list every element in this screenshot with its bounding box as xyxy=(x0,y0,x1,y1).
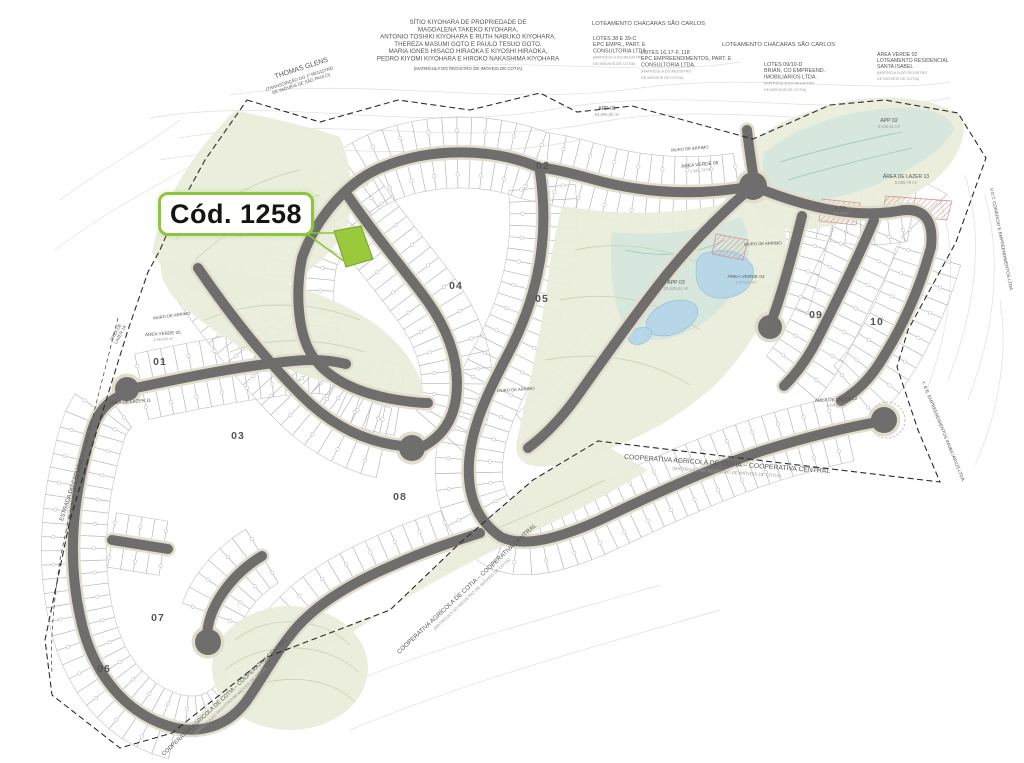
lot-number-marker xyxy=(899,272,903,276)
lot-number-marker xyxy=(455,129,459,133)
lot-number-marker xyxy=(419,330,423,334)
lot-number-marker xyxy=(370,196,374,200)
lot-code-callout: Cód. 1258 xyxy=(158,192,314,236)
lot-division-line xyxy=(893,258,920,267)
lot-number-marker xyxy=(52,535,56,539)
lot-number-marker xyxy=(520,370,524,374)
lot-number-marker xyxy=(630,208,634,212)
lot-number-marker xyxy=(562,147,566,151)
lot-number-marker xyxy=(734,165,738,169)
lot-division-line xyxy=(189,587,212,599)
contour-line xyxy=(230,82,950,95)
lot-number-marker xyxy=(855,358,859,362)
lot-number-marker xyxy=(394,223,398,227)
map-label: MURO DE ARRIMO xyxy=(671,144,709,152)
lot-number-marker xyxy=(93,522,97,526)
lot-number-marker xyxy=(93,571,97,575)
lot-division-line xyxy=(530,547,532,575)
lot-number-marker xyxy=(140,735,144,739)
lot-number-marker xyxy=(59,618,63,622)
lot-number-marker xyxy=(220,390,224,394)
lot-number-marker xyxy=(101,619,105,623)
lot-back-line xyxy=(41,394,168,759)
lot-division-line xyxy=(152,729,161,753)
lot-number-marker xyxy=(588,154,592,158)
lot-number-marker xyxy=(226,555,230,559)
lot-division-line xyxy=(90,459,117,465)
lot-number-marker xyxy=(336,447,340,451)
lot-number-marker xyxy=(52,563,56,567)
quadra-label: 02 xyxy=(536,160,550,172)
lot-number-marker xyxy=(572,551,576,555)
lot-number-marker xyxy=(213,349,217,353)
lot-division-line xyxy=(930,270,957,279)
lot-number-marker xyxy=(96,498,100,502)
lot-division-line xyxy=(390,293,414,311)
lot-division-line xyxy=(199,341,204,369)
lot-division-line xyxy=(491,161,496,191)
lot-division-line xyxy=(813,402,820,429)
lot-back-line xyxy=(116,513,167,521)
lot-division-line xyxy=(394,406,399,436)
lot-number-marker xyxy=(513,560,517,564)
lot-division-line xyxy=(50,467,75,472)
lot-division-line xyxy=(236,584,255,601)
lot-number-marker xyxy=(489,481,493,485)
contour-line xyxy=(350,610,720,730)
lot-division-line xyxy=(911,319,936,331)
lot-number-marker xyxy=(938,286,942,290)
lot-number-marker xyxy=(206,578,210,582)
lot-number-marker xyxy=(96,595,100,599)
lot-number-marker xyxy=(520,236,524,240)
quadra-label: 03 xyxy=(231,430,245,442)
lot-number-marker xyxy=(427,131,431,135)
lot-number-marker xyxy=(148,692,152,696)
lot-number-marker xyxy=(376,270,380,274)
lot-number-marker xyxy=(447,487,451,491)
lot-back-line xyxy=(108,567,159,575)
culdesac-bulb xyxy=(115,377,139,401)
lot-division-line xyxy=(435,473,463,474)
lot-number-marker xyxy=(170,400,174,404)
lot-division-line xyxy=(825,337,850,350)
lot-division-line xyxy=(474,472,502,473)
lot-code-text: Cód. 1258 xyxy=(170,199,302,230)
lot-division-line xyxy=(413,336,441,348)
lot-number-marker xyxy=(70,428,74,432)
lot-number-marker xyxy=(139,525,143,529)
lot-number-marker xyxy=(270,571,274,575)
lot-division-line xyxy=(412,122,418,151)
lot-number-marker xyxy=(494,499,498,503)
lot-number-marker xyxy=(108,640,112,644)
lot-number-marker xyxy=(300,377,304,381)
lot-division-line xyxy=(834,227,860,238)
lot-number-marker xyxy=(433,174,437,178)
lot-number-marker xyxy=(443,521,447,525)
lot-division-line xyxy=(498,293,525,302)
lot-number-marker xyxy=(113,428,117,432)
lot-number-marker xyxy=(54,508,58,512)
lot-division-line xyxy=(677,491,688,517)
lot-number-marker xyxy=(458,309,462,313)
lot-number-marker xyxy=(288,413,292,417)
lot-division-line xyxy=(653,501,665,526)
lot-division-line xyxy=(623,151,629,180)
lot-number-marker xyxy=(636,165,640,169)
lot-number-marker xyxy=(701,449,705,453)
lot-division-line xyxy=(735,425,744,451)
lot-number-marker xyxy=(781,353,785,357)
quadra-label: 07 xyxy=(151,612,165,624)
lot-number-marker xyxy=(603,203,607,207)
lot-number-marker xyxy=(122,416,126,420)
map-label: ÁREA VERDE 02LOTEAMENTO RESIDENCIALSANTA… xyxy=(877,51,949,81)
map-label: LOTES 09/10-DBRIAN, CO EMPREEND.IMOBILIÁ… xyxy=(764,62,825,92)
lot-division-line xyxy=(339,393,355,419)
lot-number-marker xyxy=(410,179,414,183)
lot-division-line xyxy=(407,247,431,266)
lot-division-line xyxy=(885,280,911,290)
lot-number-marker xyxy=(363,459,367,463)
lot-division-line xyxy=(606,523,618,548)
lot-division-line xyxy=(875,302,900,314)
lot-division-line xyxy=(120,547,123,569)
lot-division-line xyxy=(65,411,89,421)
lot-number-marker xyxy=(839,242,843,246)
lot-division-line xyxy=(787,409,794,436)
lot-number-marker xyxy=(470,337,474,341)
lot-number-marker xyxy=(92,546,96,550)
quadra-label: 10 xyxy=(870,316,884,328)
lot-number-marker xyxy=(669,508,673,512)
lot-number-marker xyxy=(191,605,195,609)
lot-number-marker xyxy=(118,660,122,664)
culdesac-bulb xyxy=(195,629,221,655)
lot-division-line xyxy=(573,139,580,168)
lot-division-line xyxy=(490,314,516,325)
lot-number-marker xyxy=(78,672,82,676)
lot-number-marker xyxy=(457,518,461,522)
lot-division-line xyxy=(510,225,538,226)
lot-number-marker xyxy=(901,228,905,232)
lot-number-marker xyxy=(456,173,460,177)
lot-division-line xyxy=(423,268,447,286)
lot-division-line xyxy=(353,547,365,572)
lot-number-marker xyxy=(253,584,257,588)
lot-number-marker xyxy=(379,202,383,206)
lot-number-marker xyxy=(407,311,411,315)
lot-division-line xyxy=(420,162,426,191)
lot-division-line xyxy=(156,389,162,416)
site-plan: SÍTIO KIYOHARA DE PROPRIEDADE DEMAGDALEN… xyxy=(0,0,1024,763)
map-label: MURO DE ARRIMO xyxy=(153,310,192,320)
lot-division-line xyxy=(52,629,77,636)
lot-division-line xyxy=(85,485,113,490)
lot-number-marker xyxy=(297,594,301,598)
lot-division-line xyxy=(303,577,320,600)
lot-division-line xyxy=(762,416,770,443)
lot-number-marker xyxy=(519,188,523,192)
lot-number-marker xyxy=(418,530,422,534)
lot-number-marker xyxy=(867,338,871,342)
lot-number-marker xyxy=(908,228,912,232)
lot-division-line xyxy=(77,678,99,692)
lot-division-line xyxy=(476,448,504,453)
lot-division-line xyxy=(468,359,493,372)
lot-number-marker xyxy=(442,285,446,289)
lot-number-marker xyxy=(270,383,274,387)
lot-division-line xyxy=(511,166,520,195)
lot-division-line xyxy=(478,489,505,497)
lot-division-line xyxy=(57,440,82,446)
lot-division-line xyxy=(415,409,438,429)
lot-number-marker xyxy=(521,212,525,216)
lot-number-marker xyxy=(827,409,831,413)
lot-number-marker xyxy=(524,184,528,188)
lot-division-line xyxy=(81,510,109,513)
lot-number-marker xyxy=(661,167,665,171)
site-plan-svg: SÍTIO KIYOHARA DE PROPRIEDADE DEMAGDALEN… xyxy=(0,0,1024,763)
lot-division-line xyxy=(257,371,261,399)
lot-number-marker xyxy=(311,432,315,436)
lot-division-line xyxy=(504,270,531,276)
lot-division-line xyxy=(557,542,564,569)
lot-division-line xyxy=(471,117,472,147)
lot-division-line xyxy=(151,688,164,713)
lot-number-marker xyxy=(376,417,380,421)
lot-division-line xyxy=(469,158,470,188)
lot-number-marker xyxy=(652,470,656,474)
lot-number-marker xyxy=(388,186,392,190)
lot-division-line xyxy=(305,278,335,281)
lot-number-marker xyxy=(245,386,249,390)
lot-division-line xyxy=(151,519,154,541)
lot-number-marker xyxy=(398,136,402,140)
lot-division-line xyxy=(451,319,479,331)
lot-number-marker xyxy=(325,397,329,401)
lot-division-line xyxy=(674,156,675,186)
lot-number-marker xyxy=(812,456,816,460)
lot-division-line xyxy=(582,534,592,560)
lot-division-line xyxy=(440,500,467,508)
lot-number-marker xyxy=(447,456,451,460)
lot-division-line xyxy=(482,424,509,433)
lot-number-marker xyxy=(511,283,515,287)
lot-number-marker xyxy=(740,479,744,483)
lot-division-line xyxy=(790,319,815,332)
lot-division-line xyxy=(824,250,849,262)
lot-number-marker xyxy=(66,645,70,649)
lot-number-marker xyxy=(320,577,324,581)
map-label: LOTEAMENTO CHÁCARAS SÃO CARLOS xyxy=(592,20,705,27)
lot-division-line xyxy=(372,178,387,204)
lot-number-marker xyxy=(393,540,397,544)
lot-number-marker xyxy=(750,430,754,434)
lot-division-line xyxy=(870,243,896,254)
lot-number-marker xyxy=(866,406,870,410)
lot-number-marker xyxy=(802,415,806,419)
lot-number-marker xyxy=(828,265,832,269)
lot-division-line xyxy=(126,515,129,537)
lot-division-line xyxy=(648,155,651,185)
lot-division-line xyxy=(391,226,415,244)
lot-number-marker xyxy=(817,288,821,292)
contour-line xyxy=(948,175,976,380)
lot-number-marker xyxy=(410,243,414,247)
lot-division-line xyxy=(146,552,149,574)
lot-division-line xyxy=(346,440,357,468)
lot-division-line xyxy=(385,408,392,437)
lot-division-line xyxy=(107,413,129,430)
lot-division-line xyxy=(848,434,854,461)
lot-division-line xyxy=(783,305,808,313)
lot-number-marker xyxy=(113,521,117,525)
lot-number-marker xyxy=(492,438,496,442)
map-label: LOTES 38 E 39-CEPC EMPR., PART. ECONSULT… xyxy=(593,36,648,66)
lot-number-marker xyxy=(903,360,907,364)
lot-number-marker xyxy=(598,541,602,545)
lot-division-line xyxy=(79,535,107,536)
lot-number-marker xyxy=(83,399,87,403)
lot-division-line xyxy=(208,560,227,577)
lot-number-marker xyxy=(561,184,565,188)
lot-number-marker xyxy=(646,519,650,523)
quadra-label: 01 xyxy=(153,356,167,368)
lot-division-line xyxy=(779,339,803,354)
lot-division-line xyxy=(598,146,606,175)
lot-number-marker xyxy=(100,473,104,477)
lot-number-marker xyxy=(837,450,841,454)
lot-division-line xyxy=(255,568,271,589)
lot-number-marker xyxy=(622,530,626,534)
lot-number-marker xyxy=(433,371,437,375)
contour-line xyxy=(968,195,994,400)
lot-division-line xyxy=(700,480,711,506)
lot-division-line xyxy=(791,280,816,287)
lot-number-marker xyxy=(471,375,475,379)
lot-number-marker xyxy=(888,235,892,239)
lot-division-line xyxy=(206,379,211,407)
lot-division-line xyxy=(798,255,823,262)
lot-division-line xyxy=(563,179,570,208)
lot-division-line xyxy=(796,381,817,399)
lot-number-marker xyxy=(488,460,492,464)
lot-division-line xyxy=(766,356,787,374)
lot-number-marker xyxy=(830,354,834,358)
lot-division-line xyxy=(91,627,118,636)
lot-division-line xyxy=(122,717,136,739)
lot-number-marker xyxy=(509,393,513,397)
lot-number-marker xyxy=(428,351,432,355)
lot-number-marker xyxy=(356,408,360,412)
lot-number-marker xyxy=(57,481,61,485)
lot-number-marker xyxy=(234,354,238,358)
lot-division-line xyxy=(181,384,186,411)
lot-number-marker xyxy=(544,559,548,563)
lot-number-marker xyxy=(106,449,110,453)
lot-number-marker xyxy=(813,244,817,248)
lot-number-marker xyxy=(159,564,163,568)
lot-number-marker xyxy=(369,551,373,555)
lot-number-marker xyxy=(321,266,325,270)
lot-division-line xyxy=(395,168,405,196)
lot-number-marker xyxy=(107,556,111,560)
lot-division-line xyxy=(225,336,230,364)
lot-number-marker xyxy=(815,378,819,382)
lot-number-marker xyxy=(512,135,516,139)
lot-number-marker xyxy=(843,330,847,334)
lot-number-marker xyxy=(483,351,487,355)
lot-number-marker xyxy=(133,560,137,564)
lot-division-line xyxy=(232,375,237,403)
lot-number-marker xyxy=(613,160,617,164)
lot-number-marker xyxy=(381,418,385,422)
lot-number-marker xyxy=(917,336,921,340)
culdesac-bulb xyxy=(739,172,767,200)
lot-number-marker xyxy=(540,143,544,147)
lot-division-line xyxy=(85,606,112,612)
lot-division-line xyxy=(382,129,392,157)
lot-number-marker xyxy=(228,619,232,623)
lot-division-line xyxy=(836,313,861,325)
lot-number-marker xyxy=(854,307,858,311)
lot-number-marker xyxy=(344,563,348,567)
map-label: Y. & R. EMPREENDIMENTOS IMOBILIÁRIOS LTD… xyxy=(921,380,967,483)
lot-division-line xyxy=(97,699,116,717)
lot-division-line xyxy=(445,158,447,188)
lot-division-line xyxy=(710,434,720,460)
lot-division-line xyxy=(812,360,836,375)
lot-number-marker xyxy=(725,439,729,443)
lot-division-line xyxy=(629,512,641,537)
lot-division-line xyxy=(360,186,384,203)
lot-division-line xyxy=(232,538,248,559)
lot-number-marker xyxy=(476,367,480,371)
lot-number-marker xyxy=(532,346,536,350)
culdesac-bulb xyxy=(871,407,897,433)
lot-number-marker xyxy=(131,678,135,682)
lot-number-marker xyxy=(840,373,844,377)
lot-number-marker xyxy=(166,702,170,706)
lot-number-marker xyxy=(928,311,932,315)
map-label: LOTEAMENTO CHÁCARAS SÃO CARLOS xyxy=(722,41,835,48)
lot-number-marker xyxy=(238,601,242,605)
map-label: SÍTIO KIYOHARA DE PROPRIEDADE DEMAGDALEN… xyxy=(377,19,560,63)
lot-division-line xyxy=(402,525,412,551)
lot-division-line xyxy=(888,218,891,244)
lot-number-marker xyxy=(517,260,521,264)
lot-division-line xyxy=(352,143,367,169)
lot-division-line xyxy=(419,359,448,365)
lot-number-marker xyxy=(907,248,911,252)
lot-number-marker xyxy=(135,364,139,368)
lot-division-line xyxy=(174,695,181,722)
lot-division-line xyxy=(823,440,830,467)
lot-division-line xyxy=(79,560,107,561)
lot-number-marker xyxy=(888,384,892,388)
lot-number-marker xyxy=(877,259,881,263)
lot-number-marker xyxy=(115,718,119,722)
lot-number-marker xyxy=(479,174,483,178)
lot-division-line xyxy=(480,336,505,349)
lot-division-line xyxy=(43,577,69,579)
lot-number-marker xyxy=(484,130,488,134)
culdesac-bulb xyxy=(399,435,425,461)
lot-number-marker xyxy=(716,488,720,492)
quadra-label: 05 xyxy=(535,293,549,305)
